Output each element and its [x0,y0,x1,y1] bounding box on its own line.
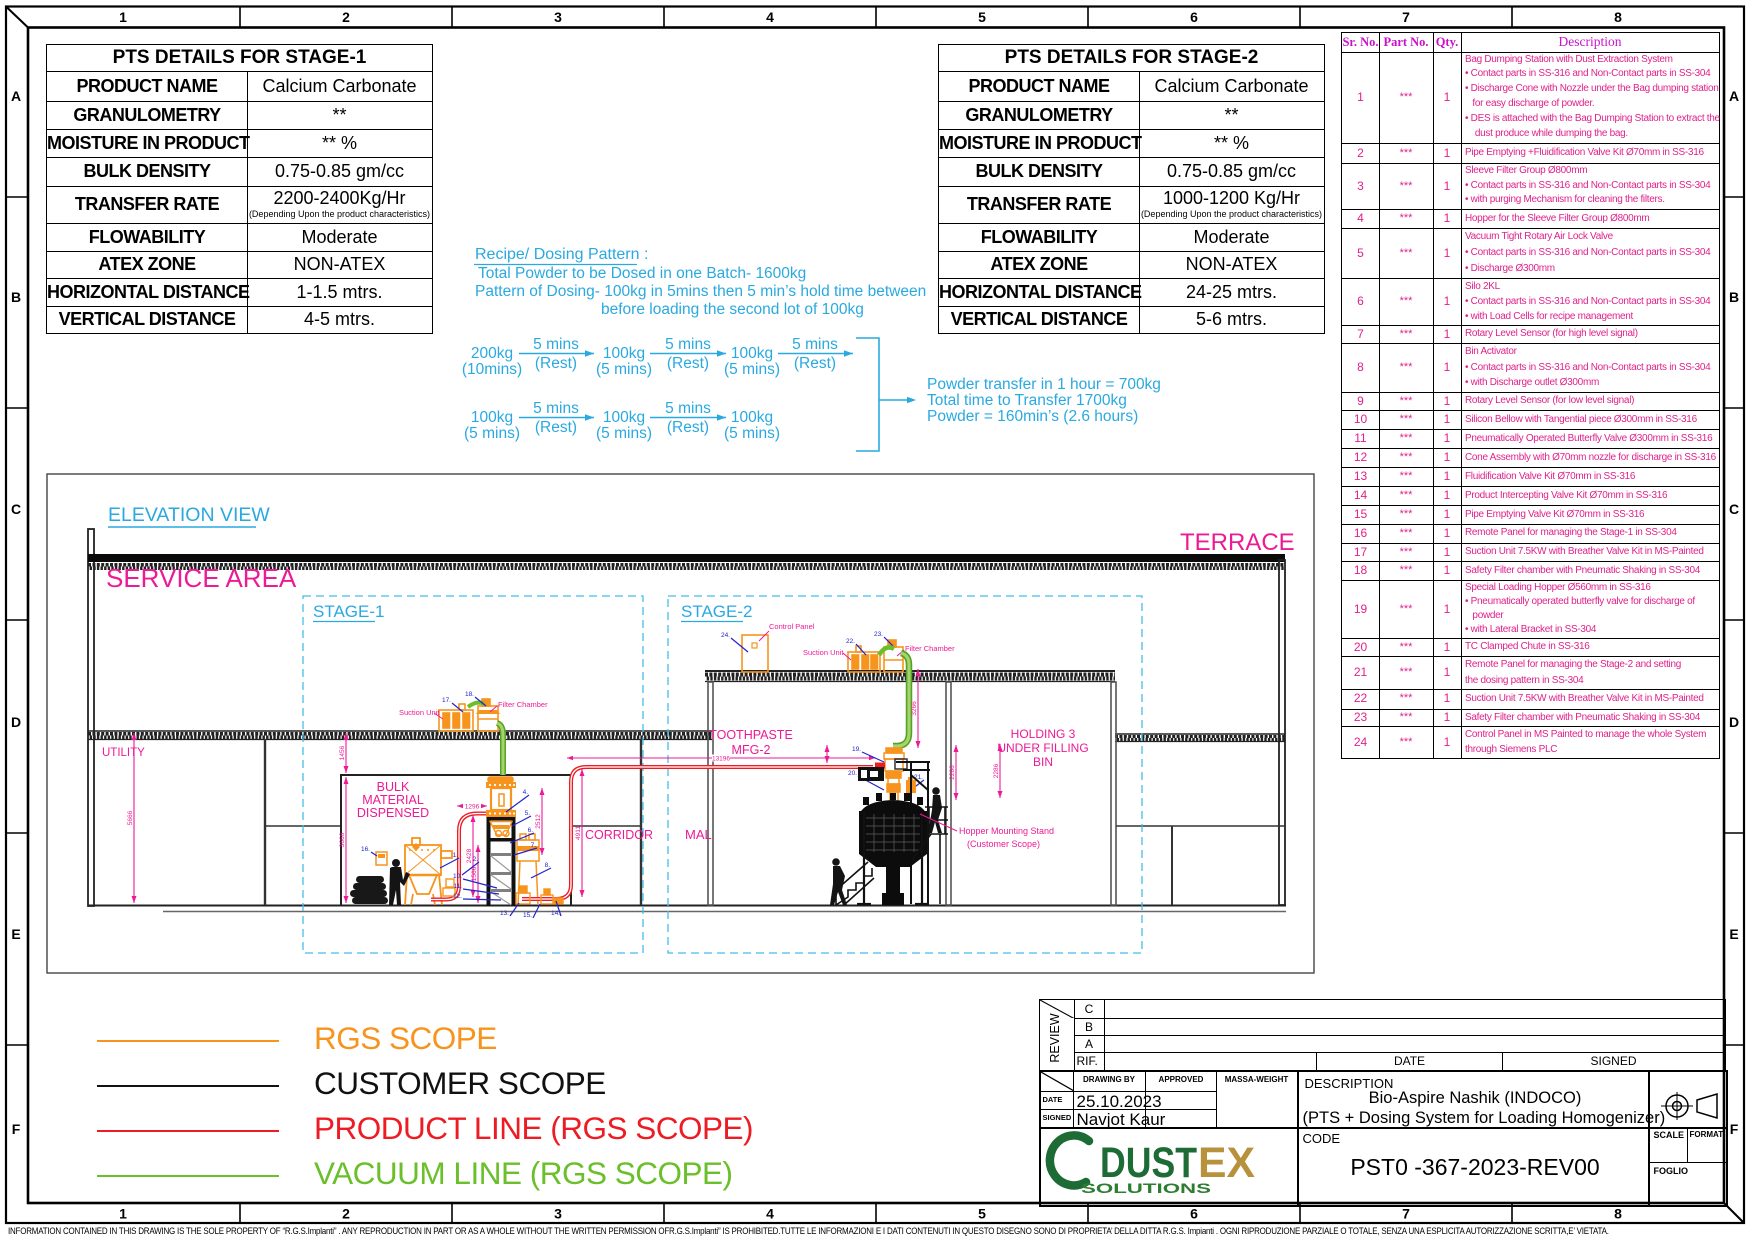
svg-text:100kg: 100kg [731,345,773,362]
svg-text:5.: 5. [525,810,531,817]
svg-text:(10mins): (10mins) [462,361,522,378]
svg-text:B: B [1729,289,1739,305]
svg-text:8.: 8. [545,862,551,869]
svg-text:(5 mins): (5 mins) [464,425,520,442]
svg-text:7: 7 [1402,1206,1410,1222]
svg-text:1: 1 [119,1206,127,1222]
svg-text:200kg: 200kg [471,345,513,362]
svg-text:Powder transfer in 1 hour = 70: Powder transfer in 1 hour = 700kg [927,376,1161,393]
svg-text:2286: 2286 [993,763,1000,778]
svg-text:3: 3 [554,1206,562,1222]
svg-text:16.: 16. [361,846,370,853]
svg-text:5 mins: 5 mins [533,400,579,417]
svg-text:1.: 1. [453,852,459,859]
svg-text:Total time to Transfer 1700kg: Total time to Transfer 1700kg [927,392,1127,409]
svg-text:5 mins: 5 mins [665,336,711,353]
svg-text:Hopper Mounting Stand: Hopper Mounting Stand [959,826,1054,836]
svg-text:5666: 5666 [127,810,134,825]
svg-text:Pattern of Dosing- 100kg in 5m: Pattern of Dosing- 100kg in 5mins then 5… [475,283,926,300]
svg-text:2512: 2512 [535,814,542,829]
svg-text:100kg: 100kg [471,409,513,426]
svg-text:(Customer Scope): (Customer Scope) [967,839,1040,849]
svg-text:Filter Chamber: Filter Chamber [498,700,548,709]
svg-text:3666: 3666 [339,832,346,847]
svg-text:CORRIDOR: CORRIDOR [585,828,653,842]
svg-text:MFG-2: MFG-2 [732,743,771,757]
svg-text:100kg: 100kg [603,345,645,362]
svg-text:TOOTHPASTE: TOOTHPASTE [709,728,793,742]
svg-text:10.: 10. [453,873,462,880]
svg-text:E: E [1729,926,1738,942]
svg-text:1: 1 [119,9,127,25]
svg-text:8: 8 [1614,9,1622,25]
svg-text:before loading the second lot: before loading the second lot of 100kg [601,301,864,318]
svg-text:5: 5 [978,1206,986,1222]
svg-text:Recipe/ Dosing Pattern :: Recipe/ Dosing Pattern : [475,246,648,263]
svg-text:2.: 2. [473,856,479,863]
svg-text:BULK: BULK [377,780,410,794]
svg-text:7: 7 [1402,9,1410,25]
svg-text:23.: 23. [874,631,883,638]
svg-text:2: 2 [342,1206,350,1222]
svg-text:STAGE-2: STAGE-2 [681,602,752,621]
svg-text:C: C [11,501,21,517]
svg-text:13.: 13. [500,910,509,917]
svg-text:1566: 1566 [471,866,478,881]
svg-text:1456: 1456 [339,745,346,760]
svg-text:Filter Chamber: Filter Chamber [905,644,955,653]
svg-text:4: 4 [766,1206,774,1222]
svg-text:6.: 6. [528,827,534,834]
svg-text:(5 mins): (5 mins) [596,361,652,378]
svg-text:2: 2 [342,9,350,25]
svg-text:5: 5 [978,9,986,25]
svg-text:6: 6 [1190,1206,1198,1222]
svg-text:24.: 24. [721,632,730,639]
svg-text:12.: 12. [453,893,462,900]
svg-text:(Rest): (Rest) [667,355,709,372]
svg-text:(Rest): (Rest) [535,419,577,436]
svg-text:A: A [1729,88,1739,104]
svg-text:7.: 7. [531,842,537,849]
svg-text:3266: 3266 [911,701,918,716]
svg-text:A: A [11,88,21,104]
svg-text:4: 4 [766,9,774,25]
svg-text:D: D [1729,714,1739,730]
svg-text:2286: 2286 [949,765,956,780]
svg-text:11.: 11. [453,883,462,890]
svg-text:5 mins: 5 mins [533,336,579,353]
svg-text:(5 mins): (5 mins) [596,425,652,442]
svg-text:100kg: 100kg [603,409,645,426]
svg-text:18.: 18. [465,691,474,698]
svg-text:4.: 4. [523,789,529,796]
svg-text:D: D [11,714,21,730]
svg-text:4911: 4911 [575,826,582,840]
svg-text:20.: 20. [848,770,857,777]
svg-text:1296: 1296 [465,804,480,811]
svg-text:3: 3 [554,9,562,25]
svg-text:UTILITY: UTILITY [102,747,145,759]
svg-text:HOLDING 3: HOLDING 3 [1011,727,1076,741]
svg-text:17.: 17. [442,697,451,704]
svg-text:(5 mins): (5 mins) [724,425,780,442]
svg-text:(5 mins): (5 mins) [724,361,780,378]
svg-text:ELEVATION VIEW: ELEVATION VIEW [108,504,270,526]
svg-text:B: B [11,289,21,305]
svg-text:F: F [12,1121,21,1137]
svg-text:SERVICE AREA: SERVICE AREA [106,563,297,593]
svg-text:5 mins: 5 mins [665,400,711,417]
svg-text:DISPENSED: DISPENSED [357,806,429,820]
svg-text:E: E [11,926,20,942]
svg-text:(Rest): (Rest) [667,419,709,436]
svg-text:Powder = 160min’s (2.6 hours): Powder = 160min’s (2.6 hours) [927,408,1138,425]
svg-text:15.: 15. [523,912,532,919]
svg-text:Control Panel: Control Panel [769,622,815,631]
svg-text:8: 8 [1614,1206,1622,1222]
svg-text:Suction Unit: Suction Unit [803,648,844,657]
svg-text:BIN: BIN [1033,755,1053,769]
svg-text:MATERIAL: MATERIAL [362,793,424,807]
svg-text:22.: 22. [846,638,855,645]
svg-text:C: C [1729,501,1739,517]
svg-text:5 mins: 5 mins [792,336,838,353]
svg-text:UNDER FILLING: UNDER FILLING [997,741,1088,755]
svg-text:Suction Unit: Suction Unit [399,708,440,717]
svg-text:STAGE-1: STAGE-1 [313,602,384,621]
svg-text:TERRACE: TERRACE [1180,529,1295,556]
svg-text:19.: 19. [852,746,861,753]
svg-text:Total Powder to be Dosed in on: Total Powder to be Dosed in one Batch- 1… [478,265,806,282]
svg-text:(Rest): (Rest) [535,355,577,372]
svg-text:SOLUTIONS: SOLUTIONS [1081,1180,1211,1196]
svg-text:MAL: MAL [685,827,712,842]
svg-text:13196: 13196 [712,756,730,763]
svg-text:REVIEW: REVIEW [1048,1013,1062,1063]
svg-text:100kg: 100kg [731,409,773,426]
svg-text:(Rest): (Rest) [794,355,836,372]
svg-text:14.: 14. [551,910,560,917]
svg-text:6: 6 [1190,9,1198,25]
